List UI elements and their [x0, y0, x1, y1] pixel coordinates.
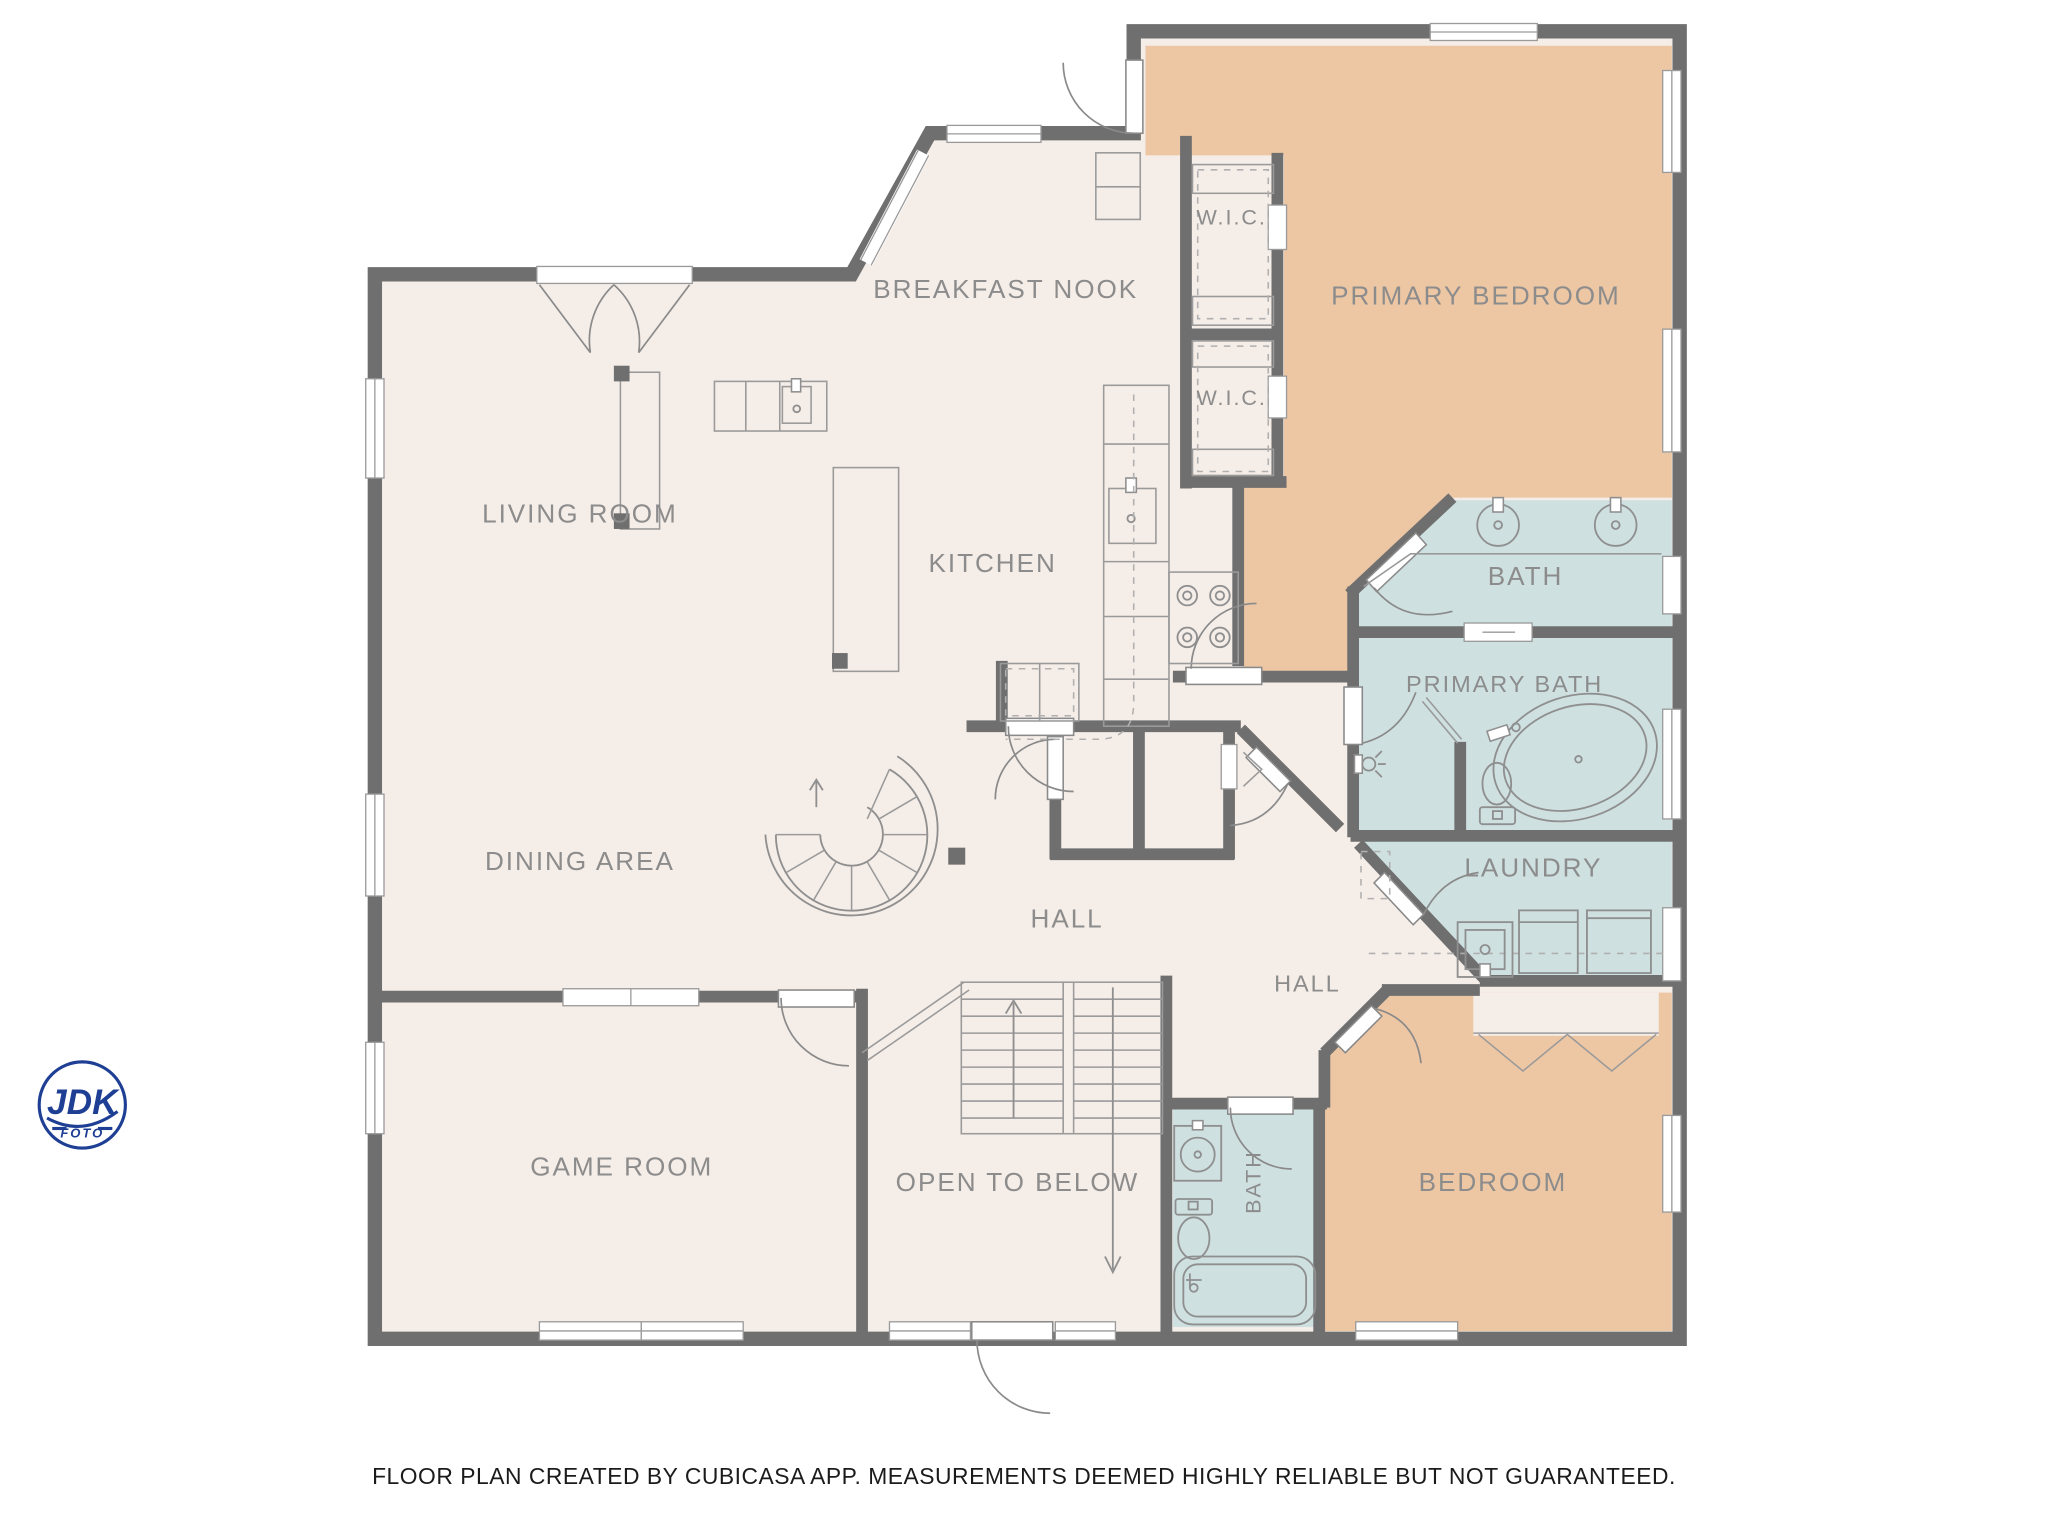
room-primary-bath: [1353, 635, 1672, 832]
window-icon: [1663, 556, 1681, 613]
door-icon: [778, 990, 854, 1007]
footer-disclaimer: FLOOR PLAN CREATED BY CUBICASA APP. MEAS…: [372, 1463, 1676, 1489]
room-bedroom: [1324, 993, 1671, 1331]
entry-door: [1126, 60, 1143, 133]
opening: [1221, 744, 1237, 788]
room-label-primary-bedroom: PRIMARY BEDROOM: [1331, 280, 1621, 310]
room-label-kitchen: KITCHEN: [928, 548, 1056, 578]
room-label-laundry: LAUNDRY: [1464, 852, 1602, 882]
door-icon: [1268, 205, 1286, 249]
door-icon: [1344, 687, 1362, 744]
room-label-primary-bath: PRIMARY BATH: [1406, 671, 1603, 697]
logo-text-foto: FOTO: [60, 1126, 104, 1141]
room-label-open-to-below: OPEN TO BELOW: [896, 1167, 1140, 1197]
window-icon: [1663, 908, 1681, 981]
door-icon: [1268, 376, 1286, 418]
room-label-hall-2: HALL: [1274, 970, 1341, 996]
floor-plan: BREAKFAST NOOK PRIMARY BEDROOM W.I.C. W.…: [0, 0, 2048, 1536]
room-label-game-room: GAME ROOM: [530, 1152, 713, 1182]
french-door: [537, 266, 692, 283]
room-label-living-room: LIVING ROOM: [482, 498, 678, 528]
door-icon: [1228, 1097, 1293, 1114]
room-label-wic-1: W.I.C.: [1196, 205, 1266, 230]
door-icon: [1186, 667, 1262, 684]
room-label-bath-2: BATH: [1240, 1150, 1265, 1214]
room-label-hall: HALL: [1031, 903, 1104, 933]
room-label-wic-2: W.I.C.: [1196, 385, 1266, 410]
post: [948, 848, 965, 865]
room-label-bath: BATH: [1488, 561, 1564, 591]
door-icon: [972, 1322, 1053, 1340]
room-label-bedroom: BEDROOM: [1419, 1167, 1568, 1197]
bedroom-closet: [1473, 993, 1658, 1036]
room-label-dining-area: DINING AREA: [485, 846, 675, 876]
jdk-foto-logo: JDK FOTO: [39, 1062, 125, 1148]
room-label-breakfast-nook: BREAKFAST NOOK: [873, 274, 1138, 304]
